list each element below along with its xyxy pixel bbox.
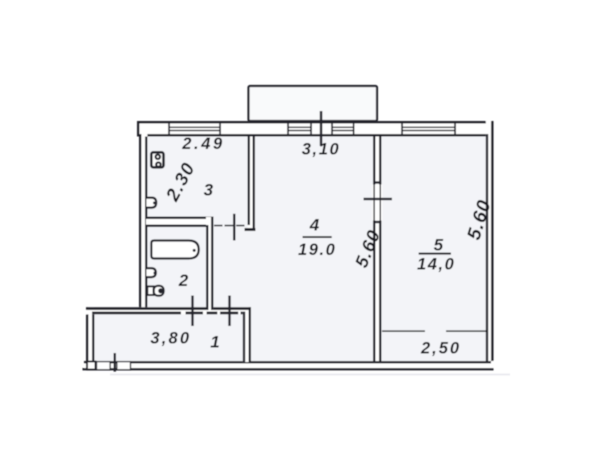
svg-text:19.0: 19.0: [298, 241, 337, 259]
svg-text:2: 2: [178, 271, 189, 290]
svg-text:14,0: 14,0: [417, 256, 456, 274]
svg-text:4: 4: [309, 216, 320, 235]
svg-text:1: 1: [210, 333, 219, 352]
svg-text:5: 5: [434, 236, 444, 255]
svg-text:3,80: 3,80: [150, 329, 191, 347]
svg-text:3,10: 3,10: [302, 141, 341, 159]
svg-text:2.49: 2.49: [181, 135, 225, 153]
svg-text:3: 3: [204, 181, 214, 200]
svg-text:2,50: 2,50: [420, 340, 461, 358]
